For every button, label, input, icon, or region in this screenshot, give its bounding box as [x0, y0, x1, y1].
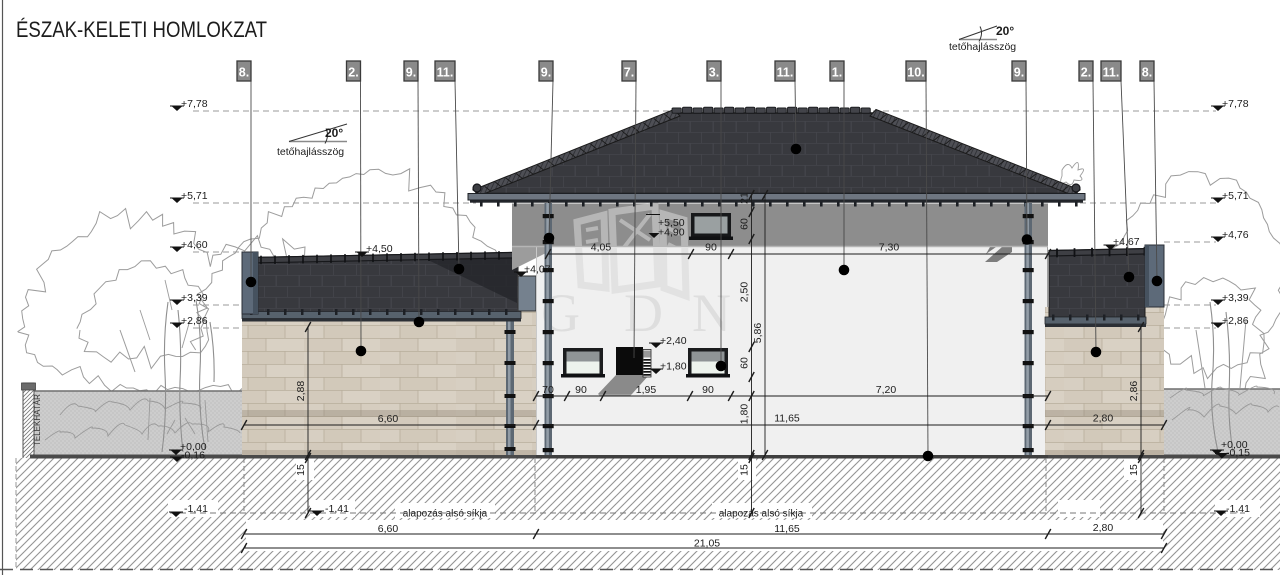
svg-text:11,65: 11,65: [774, 523, 800, 535]
svg-text:21: 21: [739, 192, 751, 204]
svg-text:2.: 2.: [1081, 66, 1091, 80]
svg-text:2,88: 2,88: [295, 381, 307, 402]
svg-text:+5,71: +5,71: [181, 190, 208, 202]
svg-text:ÉSZAK-KELETI HOMLOKZAT: ÉSZAK-KELETI HOMLOKZAT: [16, 17, 267, 42]
svg-text:5,86: 5,86: [752, 323, 764, 344]
svg-text:4,05: 4,05: [591, 242, 612, 254]
svg-text:8.: 8.: [1142, 66, 1152, 80]
svg-text:+1,80: +1,80: [660, 361, 687, 373]
svg-text:tetőhajlásszög: tetőhajlásszög: [277, 146, 344, 158]
svg-text:+3,39: +3,39: [1222, 292, 1249, 304]
svg-text:+4,76: +4,76: [1222, 229, 1249, 241]
svg-text:1,80: 1,80: [739, 404, 751, 425]
svg-text:15: 15: [739, 464, 751, 476]
svg-text:15: 15: [1128, 464, 1140, 476]
svg-text:+4,50: +4,50: [366, 243, 393, 255]
svg-text:7,30: 7,30: [879, 242, 900, 254]
svg-text:+2,40: +2,40: [660, 335, 687, 347]
svg-text:2,80: 2,80: [1093, 522, 1114, 534]
svg-text:2,80: 2,80: [1093, 413, 1114, 425]
svg-text:2.: 2.: [348, 66, 358, 80]
svg-text:20°: 20°: [325, 126, 343, 140]
svg-text:D: D: [624, 283, 663, 343]
svg-text:60: 60: [739, 357, 751, 369]
svg-text:alapozás alsó síkja: alapozás alsó síkja: [403, 509, 488, 520]
svg-text:+4,60: +4,60: [181, 239, 208, 251]
svg-text:90: 90: [702, 384, 714, 396]
svg-text:6,60: 6,60: [378, 413, 399, 425]
svg-text:-0,16: -0,16: [181, 450, 205, 462]
svg-text:2,86: 2,86: [1128, 381, 1140, 402]
svg-text:6,60: 6,60: [378, 523, 399, 535]
svg-text:21,05: 21,05: [694, 538, 720, 550]
svg-text:+3,39: +3,39: [181, 292, 208, 304]
svg-text:1.: 1.: [832, 66, 842, 80]
svg-text:1,95: 1,95: [636, 384, 657, 396]
svg-text:+4,90: +4,90: [658, 227, 685, 239]
svg-text:11.: 11.: [777, 66, 794, 80]
svg-text:2,50: 2,50: [739, 282, 751, 303]
svg-text:11.: 11.: [437, 66, 454, 80]
svg-text:N: N: [692, 283, 731, 343]
svg-text:+4,07: +4,07: [524, 264, 551, 276]
svg-text:9.: 9.: [406, 66, 416, 80]
svg-text:11.: 11.: [1103, 66, 1120, 80]
svg-text:60: 60: [739, 218, 751, 230]
svg-text:70: 70: [542, 384, 554, 396]
svg-text:7.: 7.: [624, 66, 634, 80]
svg-text:+2,86: +2,86: [181, 315, 208, 327]
svg-text:-1,41: -1,41: [184, 503, 208, 515]
svg-text:90: 90: [575, 384, 587, 396]
svg-text:+7,78: +7,78: [1222, 98, 1249, 110]
svg-text:+4,67: +4,67: [1113, 236, 1140, 248]
svg-text:9.: 9.: [1014, 66, 1024, 80]
svg-text:90: 90: [705, 242, 717, 254]
svg-text:8.: 8.: [239, 66, 249, 80]
svg-text:+2,86: +2,86: [1222, 315, 1249, 327]
svg-text:-0,15: -0,15: [1226, 447, 1250, 459]
svg-text:7,20: 7,20: [876, 384, 897, 396]
svg-text:+7,78: +7,78: [181, 98, 208, 110]
svg-text:20°: 20°: [996, 24, 1014, 38]
svg-text:10.: 10.: [907, 66, 924, 80]
svg-text:-1,41: -1,41: [325, 503, 349, 515]
svg-text:-1,41: -1,41: [1226, 503, 1250, 515]
svg-text:3.: 3.: [709, 66, 719, 80]
svg-text:9.: 9.: [541, 66, 551, 80]
svg-text:alapozás alsó síkja: alapozás alsó síkja: [719, 509, 804, 520]
svg-text:+5,71: +5,71: [1222, 190, 1249, 202]
svg-text:11,65: 11,65: [774, 413, 800, 425]
svg-text:tetőhajlásszög: tetőhajlásszög: [949, 41, 1016, 53]
svg-text:15: 15: [295, 464, 307, 476]
svg-text:TELEKHATÁR: TELEKHATÁR: [33, 394, 42, 446]
